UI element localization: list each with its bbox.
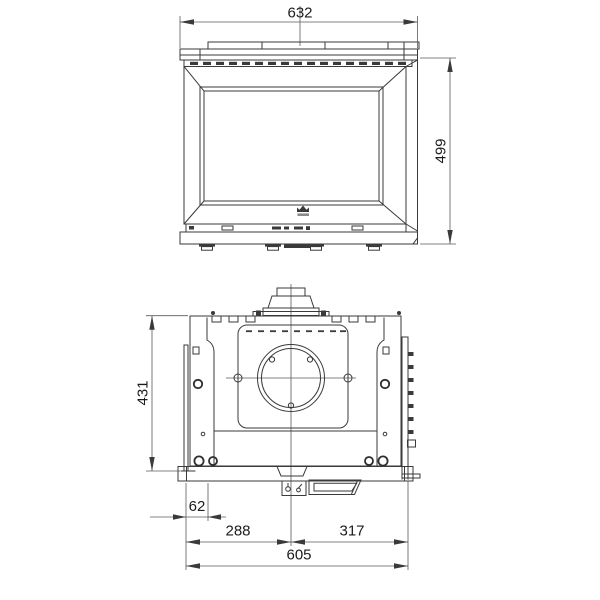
front-glass bbox=[204, 91, 379, 201]
bracket-clips bbox=[409, 352, 414, 434]
dimensions: 632 499 431 62 bbox=[135, 5, 457, 571]
dim-flue-right-label: 317 bbox=[339, 523, 364, 540]
top-front-tray bbox=[214, 431, 377, 466]
front-side-edge bbox=[406, 60, 418, 244]
front-vent-strip bbox=[184, 60, 412, 67]
dim-side-offset: 62 bbox=[150, 498, 226, 520]
top-body-outline bbox=[190, 311, 401, 466]
top-view bbox=[178, 284, 420, 546]
dim-depth-label: 431 bbox=[135, 380, 152, 405]
left-mounting-bracket bbox=[181, 345, 195, 471]
dim-front-height-label: 499 bbox=[433, 138, 450, 163]
right-mounting-bracket bbox=[402, 337, 420, 479]
flue-plate-vents bbox=[246, 330, 346, 332]
stove-dimension-drawing: 632 499 431 62 bbox=[0, 0, 600, 600]
air-control-slider-right bbox=[352, 226, 363, 230]
dim-side-offset-label: 62 bbox=[189, 498, 206, 515]
front-top-grille bbox=[208, 42, 419, 49]
top-front-plate bbox=[178, 467, 413, 482]
dim-front-width: 632 bbox=[180, 5, 418, 49]
front-door-frame bbox=[184, 67, 406, 225]
technical-drawing-canvas: 632 499 431 62 bbox=[0, 0, 600, 600]
front-view bbox=[180, 6, 419, 250]
dim-flue-left-label: 288 bbox=[225, 523, 250, 540]
dim-flue-center: 288 317 bbox=[186, 523, 408, 545]
flue-plate bbox=[234, 325, 352, 428]
brand-emblem-icon bbox=[297, 206, 309, 217]
bracket-knob bbox=[408, 440, 416, 447]
front-base bbox=[180, 232, 418, 250]
dim-front-height: 499 bbox=[420, 58, 456, 244]
front-top-cap bbox=[180, 49, 418, 60]
front-glass-outer bbox=[200, 87, 383, 205]
base-center-bracket bbox=[284, 244, 310, 249]
dim-front-width-label: 632 bbox=[287, 5, 312, 22]
air-control-slider-left bbox=[222, 226, 233, 230]
fixing-bolts bbox=[194, 380, 389, 466]
handle-tray bbox=[309, 480, 361, 495]
dim-overall-width-label: 605 bbox=[286, 547, 311, 564]
door-latch-detail bbox=[282, 481, 306, 496]
front-air-control-strip bbox=[186, 224, 406, 232]
rear-castellation bbox=[212, 316, 375, 322]
dim-overall-width: 605 bbox=[186, 547, 408, 569]
dim-depth: 431 bbox=[135, 316, 189, 471]
